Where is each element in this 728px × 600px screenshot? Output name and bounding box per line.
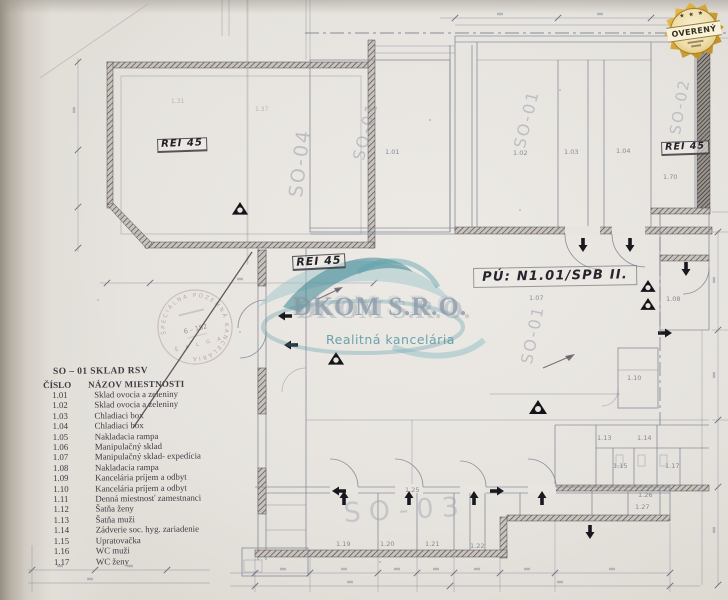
legend-room-number: 1.13: [45, 515, 84, 526]
legend-room-number: 1.05: [44, 431, 83, 442]
legend-room-number: 1.14: [45, 525, 84, 536]
legend-room-name: Denná miestnosť zamestnanci: [95, 493, 201, 505]
legend-room-number: 1.16: [45, 546, 84, 557]
legend-room-name: Chladiaci box: [94, 410, 143, 421]
legend-room-name: Nakladacia rampa: [95, 431, 159, 442]
legend-room-name: Sklad ovocia a zeleniny: [94, 399, 178, 410]
legend-room-name: Šatňa muži: [96, 514, 135, 525]
legend-room-number: 1.12: [44, 504, 83, 515]
legend-room-name: Upratovačka: [96, 535, 141, 546]
legend-title: SO – 01 SKLAD RSV: [53, 365, 261, 377]
legend-room-number: 1.06: [44, 442, 83, 453]
legend-room-number: 1.02: [43, 400, 82, 411]
legend-room-number: 1.08: [44, 463, 83, 474]
legend-room-name: Chladiaci box: [95, 420, 144, 431]
legend-room-name: Manipulačný sklad: [95, 441, 162, 452]
legend-room-number: 1.07: [44, 452, 83, 463]
legend-room-number: 1.10: [44, 483, 83, 494]
legend-room-name: WC muži: [96, 545, 130, 556]
legend-room-number: 1.15: [45, 535, 84, 546]
legend-room-name: WC ženy: [96, 556, 129, 567]
legend-col-number: ČÍSLO: [43, 380, 79, 390]
main-hall: [238, 248, 709, 560]
legend-room-name: Nakladacia rampa: [95, 462, 159, 473]
legend-room-name: Manipulačný sklad- expedícia: [95, 451, 201, 463]
legend-room-number: 1.17: [45, 556, 84, 567]
verified-badge: ★ ★ ★ OVERENÝ: [660, 0, 727, 64]
legend-room-number: 1.11: [44, 494, 83, 505]
round-stamp: ŠPECIÁLNA POZEMNÁ KANCELÁRIA 6 – 182 Š A…: [150, 282, 240, 372]
legend-room-name: Zádverie soc. hyg. zariadenie: [96, 524, 199, 535]
legend-room-number: 1.01: [43, 390, 82, 401]
legend-room-name: Šatňa ženy: [95, 504, 133, 515]
legend-room-number: 1.04: [44, 421, 83, 432]
building-so04: [107, 40, 455, 249]
legend-room-number: 1.09: [44, 473, 83, 484]
legend-rows: 1.01Sklad ovocia a zeleniny1.02Sklad ovo…: [43, 388, 263, 567]
scanned-floor-plan-page: ŠPECIÁLNA POZEMNÁ KANCELÁRIA 6 – 182 Š A…: [0, 0, 728, 600]
legend-room-number: 1.03: [43, 411, 82, 422]
room-legend: SO – 01 SKLAD RSV ČÍSLO NÁZOV MIESTNOSTI…: [43, 365, 263, 567]
